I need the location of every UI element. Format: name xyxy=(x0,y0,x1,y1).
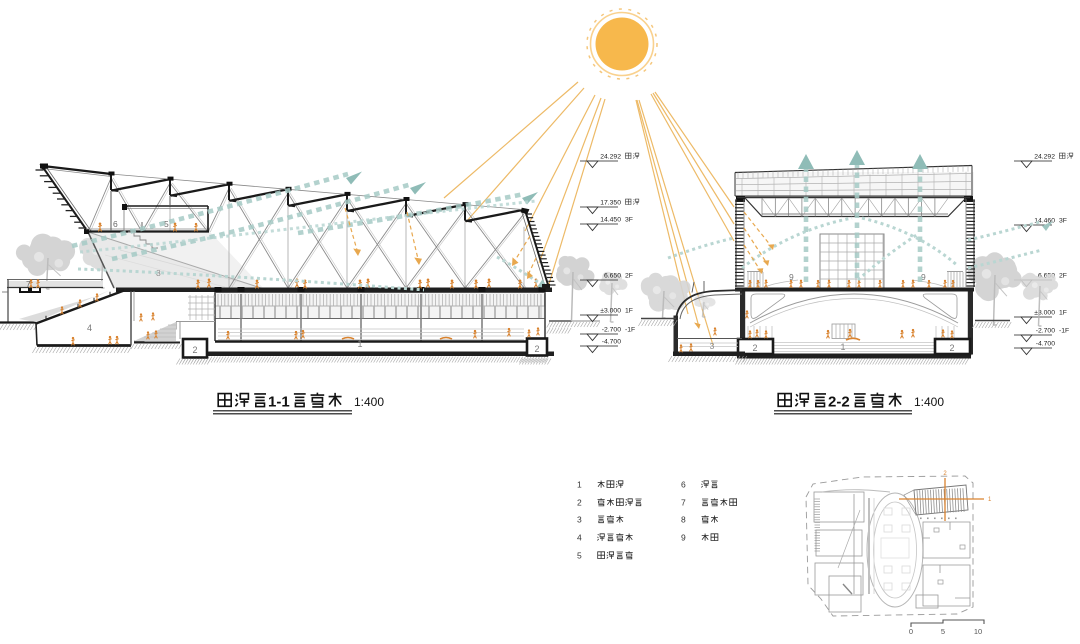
svg-text:1-1: 1-1 xyxy=(268,394,290,411)
svg-text:-4.700: -4.700 xyxy=(1036,341,1055,348)
svg-text:1: 1 xyxy=(357,339,362,349)
svg-text:3F: 3F xyxy=(625,217,633,224)
svg-text:4: 4 xyxy=(577,533,582,543)
svg-text:5: 5 xyxy=(941,627,945,636)
svg-text:3: 3 xyxy=(577,515,582,525)
svg-text:2F: 2F xyxy=(1059,273,1067,280)
svg-text:7: 7 xyxy=(681,498,686,508)
svg-text:-2.700: -2.700 xyxy=(1036,328,1055,335)
svg-text:4: 4 xyxy=(87,323,92,333)
svg-text:2: 2 xyxy=(192,345,197,355)
svg-text:24.292: 24.292 xyxy=(1034,154,1055,161)
svg-text:2F: 2F xyxy=(625,273,633,280)
svg-text:-1F: -1F xyxy=(625,327,635,334)
svg-text:24.292: 24.292 xyxy=(600,154,621,161)
svg-text:5: 5 xyxy=(577,551,582,561)
svg-text:3: 3 xyxy=(710,341,715,351)
svg-text:6.650: 6.650 xyxy=(604,273,621,280)
svg-text:2: 2 xyxy=(949,343,954,353)
svg-text:2: 2 xyxy=(752,343,757,353)
svg-text:-2.700: -2.700 xyxy=(602,327,621,334)
svg-text:6: 6 xyxy=(681,480,686,490)
svg-text:1: 1 xyxy=(840,342,845,352)
svg-text:9: 9 xyxy=(789,272,794,282)
svg-text:6: 6 xyxy=(113,219,118,229)
svg-text:3F: 3F xyxy=(1059,218,1067,225)
svg-text:7: 7 xyxy=(26,279,31,289)
svg-text:1:400: 1:400 xyxy=(354,395,384,409)
svg-text:-1F: -1F xyxy=(1059,328,1069,335)
svg-text:1F: 1F xyxy=(625,308,633,315)
svg-text:14.450: 14.450 xyxy=(600,217,621,224)
svg-text:2: 2 xyxy=(577,498,582,508)
svg-text:9: 9 xyxy=(681,533,686,543)
svg-text:8: 8 xyxy=(681,515,686,525)
svg-text:2-2: 2-2 xyxy=(828,394,850,411)
svg-text:1F: 1F xyxy=(1059,310,1067,317)
svg-text:±3.000: ±3.000 xyxy=(1034,310,1055,317)
svg-text:1: 1 xyxy=(577,480,582,490)
svg-text:1:400: 1:400 xyxy=(914,395,944,409)
svg-text:0: 0 xyxy=(909,627,913,636)
svg-text:±3.000: ±3.000 xyxy=(600,308,621,315)
svg-text:-4.700: -4.700 xyxy=(602,339,621,346)
svg-text:17.350: 17.350 xyxy=(600,200,621,207)
svg-text:10: 10 xyxy=(974,627,982,636)
svg-text:2: 2 xyxy=(534,344,539,354)
